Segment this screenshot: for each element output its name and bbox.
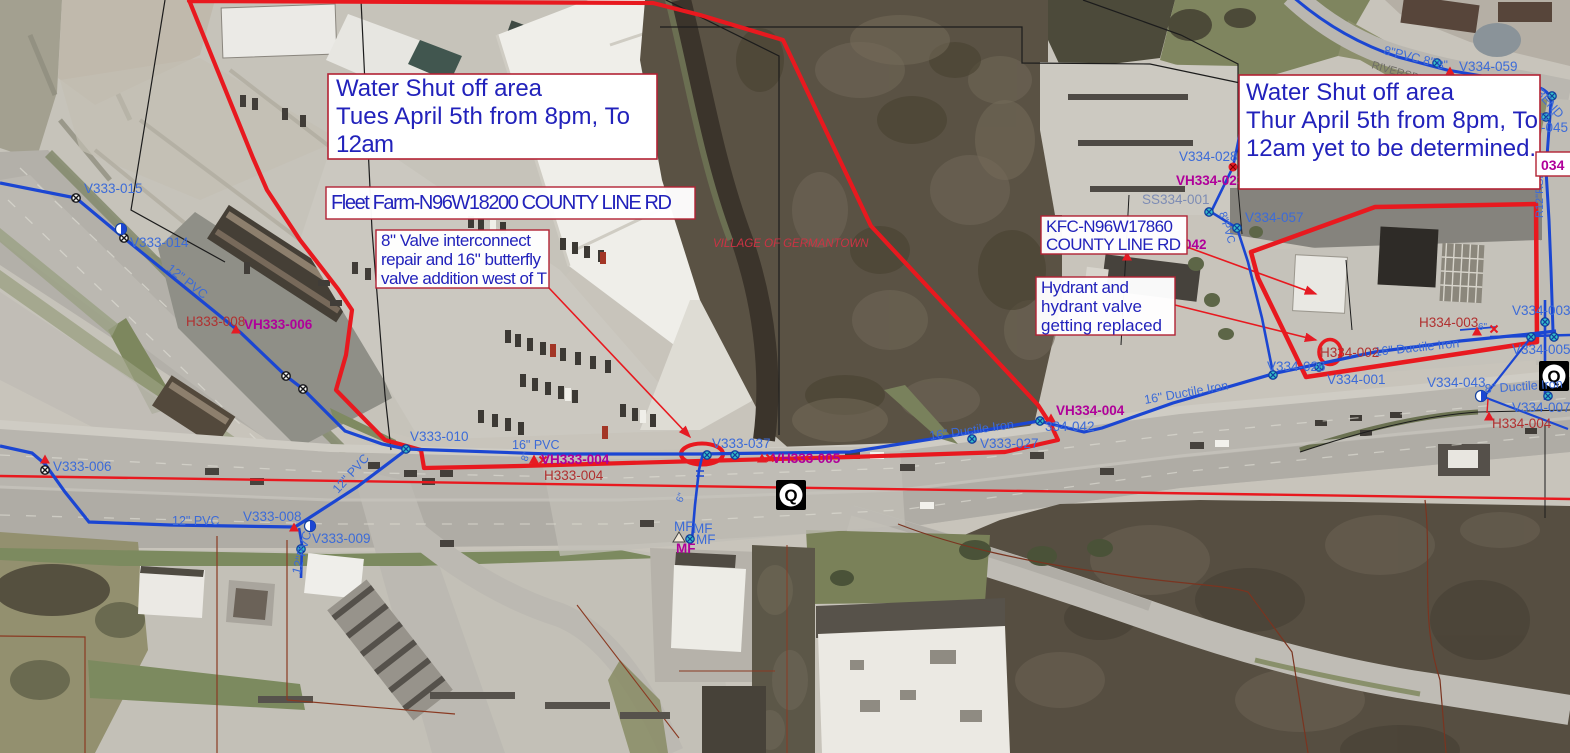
svg-text:SS334-001: SS334-001 (1142, 192, 1210, 207)
svg-text:valve addition west of T: valve addition west of T (381, 269, 547, 288)
svg-text:H334-004: H334-004 (1492, 416, 1552, 431)
svg-text:V334-003: V334-003 (1512, 303, 1570, 318)
svg-text:V334-028: V334-028 (1179, 149, 1238, 164)
svg-text:H333-004: H333-004 (544, 468, 604, 483)
svg-text:V333-027: V333-027 (980, 436, 1039, 451)
svg-text:MF: MF (676, 541, 696, 556)
svg-text:VH334-023: VH334-023 (1176, 173, 1245, 188)
svg-text:MF: MF (674, 519, 694, 534)
svg-text:6": 6" (1478, 322, 1488, 333)
svg-text:Water Shut off area: Water Shut off area (1246, 79, 1455, 106)
svg-text:V333-009: V333-009 (312, 531, 371, 546)
svg-text:V334-001: V334-001 (1327, 372, 1386, 387)
svg-text:KFC-N96W17860: KFC-N96W17860 (1046, 217, 1173, 236)
svg-text:VH334-004: VH334-004 (1056, 403, 1125, 418)
svg-text:Fleet Farm-N96W18200 COUNTY LI: Fleet Farm-N96W18200 COUNTY LINE RD (331, 192, 672, 214)
svg-text:V334-007: V334-007 (1512, 400, 1570, 415)
svg-text:Hydrant and: Hydrant and (1041, 278, 1129, 297)
svg-text:12" PVC: 12" PVC (172, 514, 220, 528)
svg-text:034: 034 (1541, 157, 1565, 173)
svg-text:Q: Q (784, 486, 797, 505)
svg-text:V334-005: V334-005 (1512, 342, 1570, 357)
svg-text:V334-026: V334-026 (1267, 359, 1326, 374)
svg-text:V334-057: V334-057 (1245, 210, 1304, 225)
svg-text:16" PVC: 16" PVC (512, 438, 560, 452)
svg-text:H334-003: H334-003 (1419, 315, 1478, 330)
svg-text:Thur April 5th from 8pm, To: Thur April 5th from 8pm, To (1246, 107, 1538, 134)
svg-text:H333-008: H333-008 (186, 314, 245, 329)
svg-text:V334-059: V334-059 (1459, 59, 1518, 74)
svg-text:VH333-006: VH333-006 (244, 317, 313, 332)
svg-text:12am yet to be determined.: 12am yet to be determined. (1246, 135, 1536, 162)
svg-text:V333-008: V333-008 (243, 509, 302, 524)
svg-text:8": 8" (1437, 58, 1448, 72)
svg-text:H334-002: H334-002 (1320, 345, 1379, 360)
svg-text:V333-015: V333-015 (84, 181, 143, 196)
svg-text:repair and 16" butterfly: repair and 16" butterfly (381, 250, 542, 269)
svg-text:VH333-005: VH333-005 (772, 451, 841, 466)
svg-text:12am: 12am (336, 131, 394, 158)
svg-text:V333-010: V333-010 (410, 429, 469, 444)
svg-text:VH333-004: VH333-004 (541, 452, 610, 467)
svg-text:8" Valve interconnect: 8" Valve interconnect (381, 231, 531, 250)
svg-text:V333-006: V333-006 (53, 459, 112, 474)
svg-text:hydrant valve: hydrant valve (1041, 297, 1142, 316)
svg-text:COUNTY LINE RD: COUNTY LINE RD (1046, 235, 1181, 254)
svg-text:V333-014: V333-014 (130, 235, 189, 250)
svg-text:334-042: 334-042 (1045, 419, 1095, 434)
svg-text:12": 12" (1539, 112, 1554, 123)
svg-text:V334-043: V334-043 (1427, 375, 1486, 390)
svg-text:getting replaced: getting replaced (1041, 316, 1162, 335)
svg-text:VILLAGE OF GERMANTOWN: VILLAGE OF GERMANTOWN (713, 238, 869, 250)
svg-text:Water Shut off area: Water Shut off area (336, 75, 543, 102)
svg-text:V333-037: V333-037 (712, 436, 771, 451)
svg-text:MF: MF (696, 532, 716, 547)
svg-text:Tues April 5th from 8pm, To: Tues April 5th from 8pm, To (336, 103, 630, 130)
